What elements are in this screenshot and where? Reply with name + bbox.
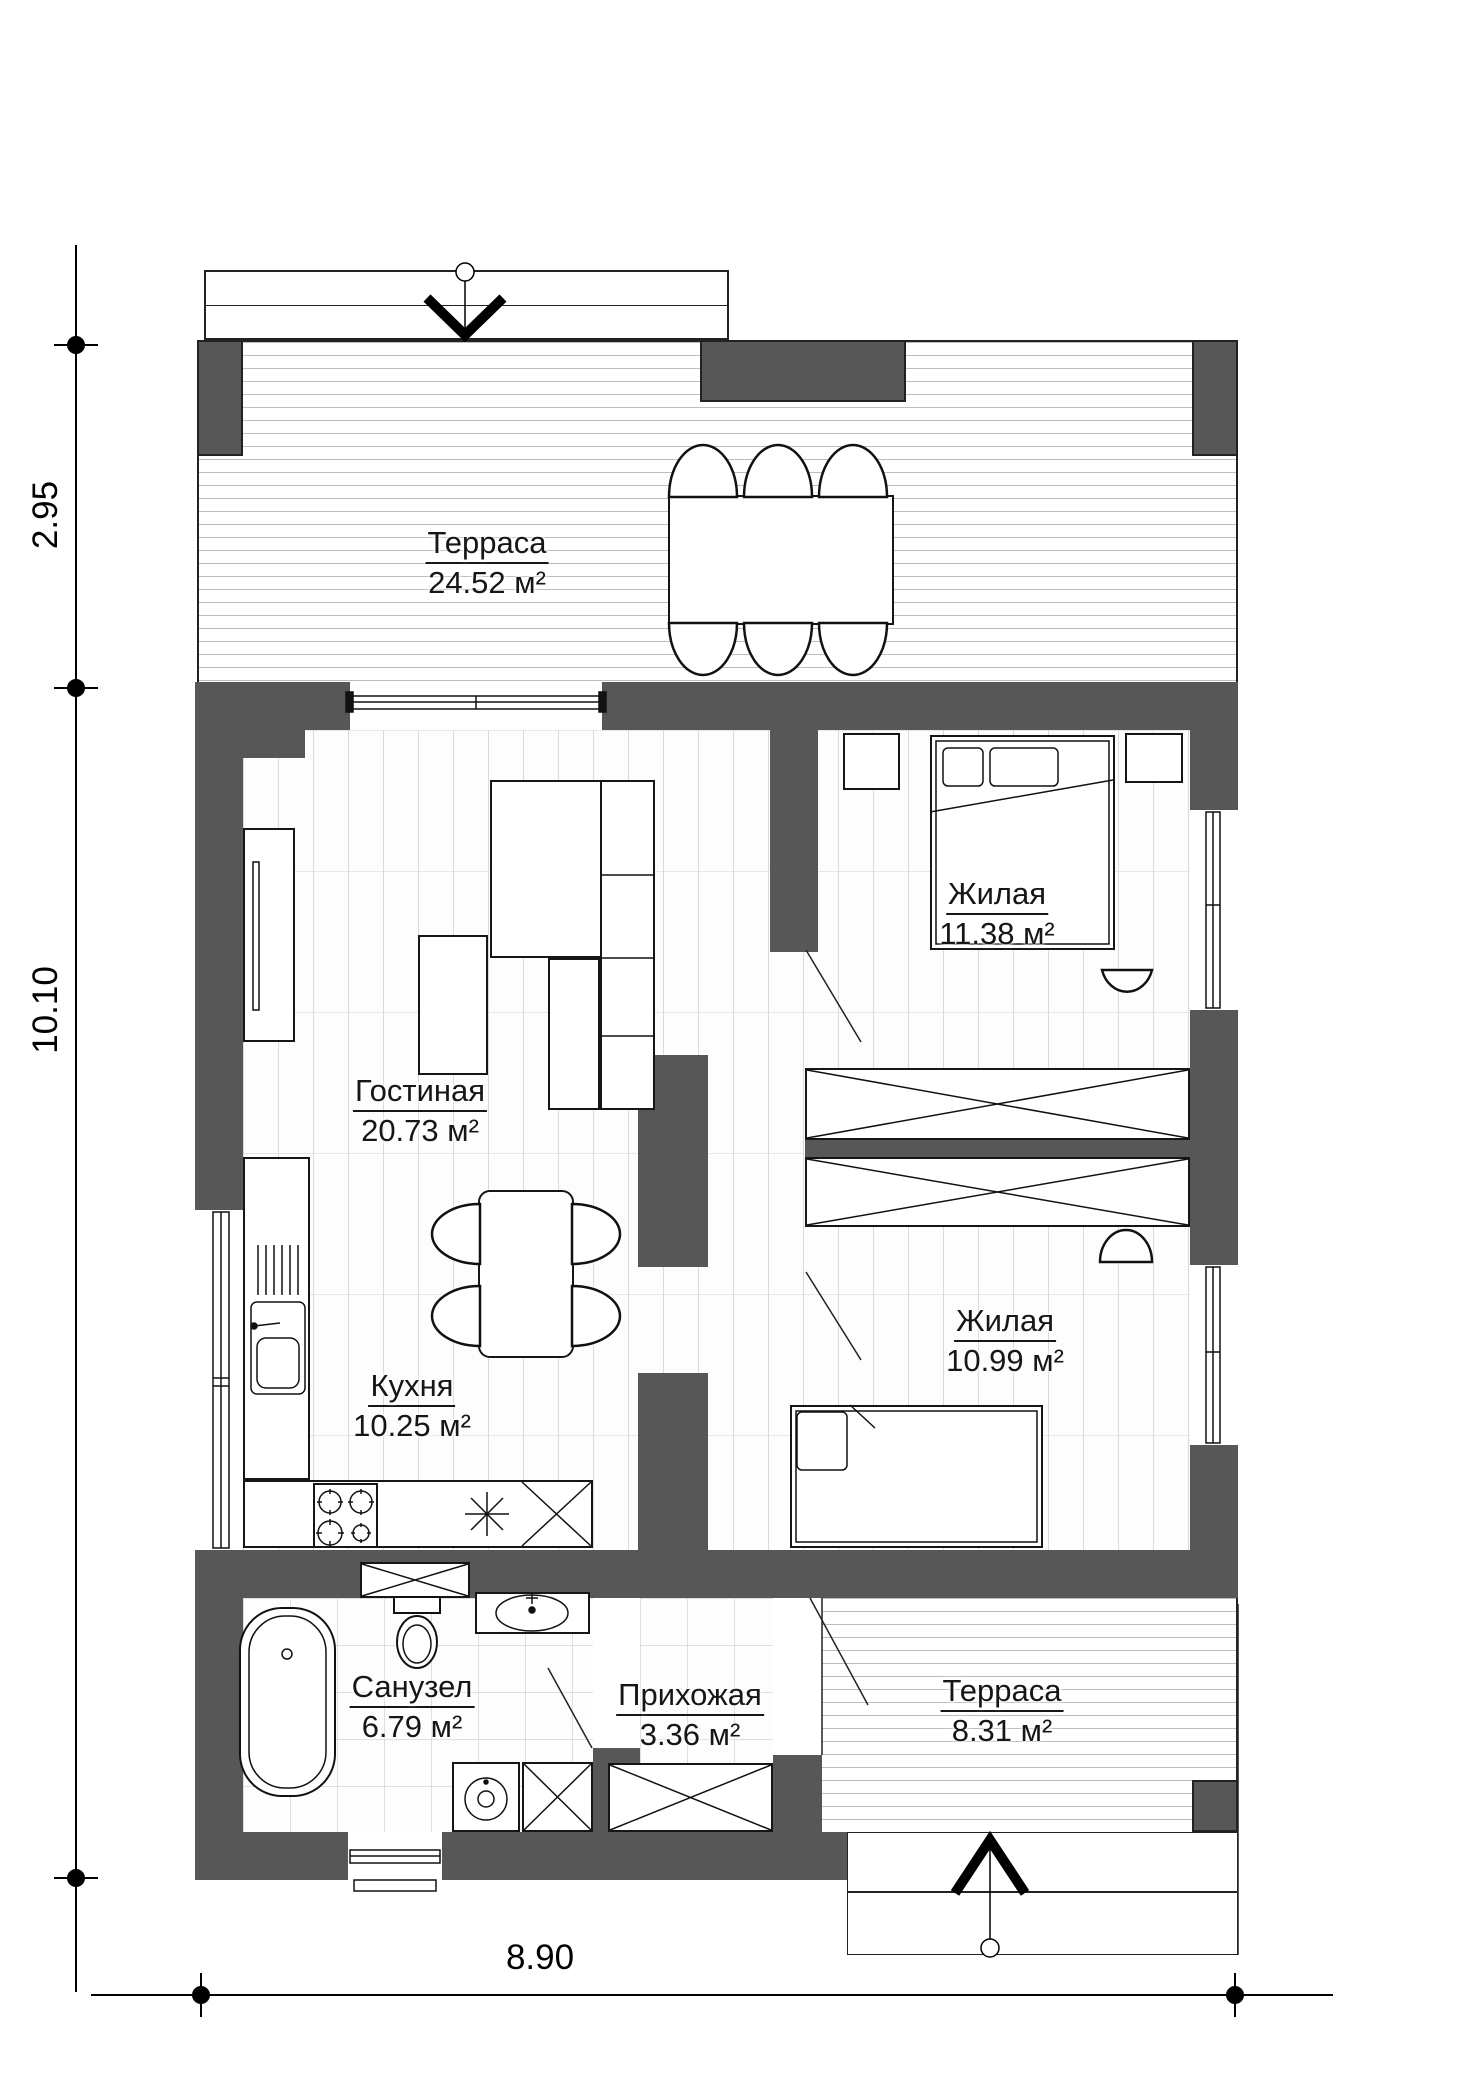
wall-segment [770,730,818,952]
room-area: 24.52 м² [426,564,549,601]
room-name: Терраса [426,524,549,564]
room-name: Терраса [941,1672,1064,1712]
room-name: Жилая [946,875,1048,915]
room-label-bathroom: Санузел 6.79 м² [350,1668,475,1745]
stove [313,1483,378,1548]
wall-segment [195,1598,243,1832]
wall-segment [195,1550,1238,1598]
wall-segment [805,1140,1190,1157]
terrace-post [1192,1780,1238,1832]
room-name: Кухня [369,1367,456,1407]
window-gap [348,1832,442,1880]
room-name: Прихожая [616,1676,764,1716]
nightstand [843,733,900,790]
terrace-dining-table [668,495,894,625]
room-label-terrace-top: Терраса 24.52 м² [426,524,549,601]
room-label-bedroom-2: Жилая 10.99 м² [946,1302,1064,1379]
entry-steps-top-line [204,305,729,306]
wall-segment [195,730,243,1210]
room-area: 8.31 м² [941,1712,1064,1749]
dim-house-depth: 10.10 [26,966,66,1054]
kitchen-counter-left [243,1157,310,1480]
wall-cabinet [360,1562,470,1598]
tv-cabinet [243,828,295,1042]
wall-segment [1190,730,1238,810]
kitchen-counter-bottom [243,1480,593,1548]
dining-table [478,1190,574,1358]
window-gap [350,682,602,730]
terrace-post [197,340,243,456]
room-area: 20.73 м² [353,1112,487,1149]
terrace-bottom-step-2 [847,1892,1238,1955]
washing-machine [452,1762,520,1832]
wall-segment [1190,1010,1238,1265]
sofa-section [548,958,600,1110]
room-label-living: Гостиная 20.73 м² [353,1072,487,1149]
wall-segment [195,682,350,730]
room-label-kitchen: Кухня 10.25 м² [353,1367,471,1444]
wall-segment [638,1373,708,1550]
room-area: 3.36 м² [616,1716,764,1753]
room-name: Жилая [954,1302,1056,1342]
terrace-header [700,340,906,402]
wall-segment [773,1755,822,1832]
wall-segment [1190,1445,1238,1550]
window-gap [1190,810,1238,1010]
room-name: Санузел [350,1668,475,1708]
wall-segment [243,730,305,758]
floor-plan: Терраса 24.52 м² Гостиная 20.73 м² Жилая… [0,0,1460,2077]
window-gap [195,1210,243,1550]
bathroom-sink-counter [475,1592,590,1634]
wardrobe [805,1068,1190,1140]
nightstand [1125,733,1183,783]
sofa-section [490,780,602,958]
dim-terrace-depth: 2.95 [26,481,66,549]
room-area: 10.99 м² [946,1342,1064,1379]
room-label-bedroom-1: Жилая 11.38 м² [939,875,1055,952]
terrace-post [1192,340,1238,456]
wall-segment [442,1832,847,1880]
bathroom-cabinet [522,1762,593,1832]
terrace-bottom-step-1 [847,1832,1238,1892]
wardrobe [805,1157,1190,1227]
window-gap [1190,1265,1238,1445]
hallway-wardrobe [608,1763,773,1832]
sofa-section [600,780,655,1110]
wall-segment [602,682,1238,730]
room-label-hallway: Прихожая 3.36 м² [616,1676,764,1753]
room-area: 11.38 м² [939,915,1055,952]
wall-segment [195,1832,348,1880]
dim-house-width: 8.90 [506,1938,574,1978]
coffee-table [418,935,488,1075]
room-name: Гостиная [353,1072,487,1112]
room-area: 10.25 м² [353,1407,471,1444]
room-area: 6.79 м² [350,1708,475,1745]
room-label-terrace-bottom: Терраса 8.31 м² [941,1672,1064,1749]
bed [790,1405,1043,1548]
